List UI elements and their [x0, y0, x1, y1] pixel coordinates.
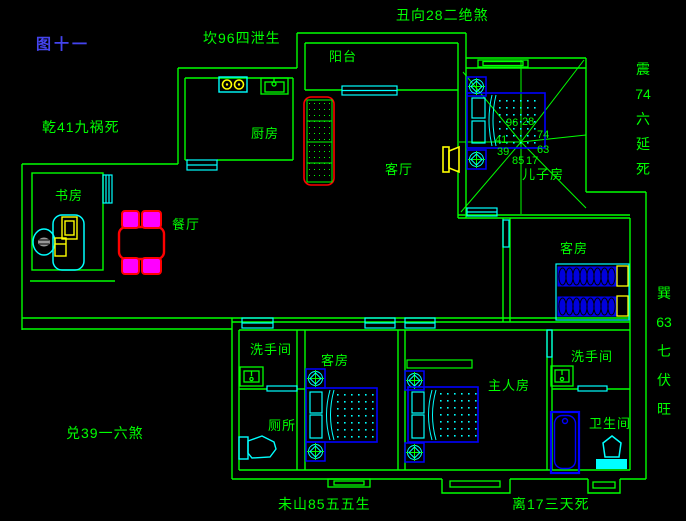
washroom-left-sink	[240, 367, 263, 386]
figure-title: 图十一	[36, 37, 90, 52]
room-label-washroom-right: 洗手间	[571, 349, 613, 364]
balcony-window	[342, 86, 397, 95]
room-label-guest-bottom: 客房	[321, 353, 349, 368]
toilet-tank	[596, 459, 627, 469]
room-label-living: 客厅	[385, 162, 413, 177]
guest-right-beds	[556, 264, 629, 320]
room-label-balcony: 阳台	[329, 49, 357, 64]
corridor-window-1	[242, 318, 273, 328]
room-label-master: 主人房	[488, 378, 530, 393]
guest-bottom-bed	[306, 388, 377, 442]
corridor-window-3	[405, 318, 435, 328]
room-label-guest-right: 客房	[560, 241, 588, 256]
living-room-door	[443, 147, 459, 172]
floorplan-canvas[interactable]: 图十一 坎96四泄生 丑向28二绝煞 乾41九祸死 兑39一六煞 未山85五五生…	[0, 0, 686, 521]
kitchen-stove	[219, 77, 247, 92]
fixture	[306, 369, 325, 388]
compass-number-se: 63	[537, 144, 549, 156]
sofa	[304, 97, 334, 185]
compass-number-e: 74	[537, 129, 549, 141]
pillow	[617, 266, 628, 286]
dining-chairs	[122, 211, 161, 274]
study-desk	[33, 215, 84, 270]
pillow	[617, 296, 628, 316]
annotation-wei: 未山85五五生	[278, 497, 371, 512]
bathroom-door	[578, 386, 607, 391]
fixture	[306, 442, 325, 461]
compass-number-n-right: 28	[522, 116, 534, 128]
bathroom-toilet	[596, 436, 627, 469]
guest-right-window	[503, 220, 509, 247]
annotation-xun: 巽 63 七 伏 旺	[652, 279, 676, 424]
annotation-dui: 兑39一六煞	[66, 426, 144, 441]
study-window	[103, 175, 112, 203]
kitchen-window	[187, 160, 217, 170]
corridor-window-2	[365, 318, 395, 328]
compass-number-sw: 39	[497, 146, 509, 158]
dining-table	[119, 227, 164, 259]
master-bed	[408, 387, 478, 442]
annotation-li: 离17三天死	[512, 497, 590, 512]
annotation-kan: 坎96四泄生	[203, 31, 281, 46]
ceiling-fixtures	[306, 77, 486, 462]
toilet-fixture	[239, 436, 276, 459]
bay-window-bottom-left	[328, 479, 370, 487]
compass-number-s-left: 85	[512, 155, 524, 167]
computer	[55, 217, 77, 256]
room-label-dining: 餐厅	[172, 217, 200, 232]
annotation-chou: 丑向28二绝煞	[396, 8, 489, 23]
bathtub	[551, 412, 579, 473]
compass-number-w: 41	[495, 134, 507, 146]
washroom-right-sink	[551, 366, 573, 386]
floorplan-drawing	[0, 0, 686, 521]
room-label-toilet: 厕所	[268, 418, 296, 433]
room-label-sons-room: 儿子房	[522, 167, 564, 182]
bay-window-bathroom	[593, 482, 615, 488]
room-label-study: 书房	[55, 188, 83, 203]
dining-set	[119, 211, 164, 274]
compass-number-n-left: 96	[506, 117, 518, 129]
room-label-bathroom: 卫生间	[589, 416, 631, 431]
compass-number-s-right: 17	[526, 155, 538, 167]
fixture	[467, 150, 486, 169]
kitchen-sink	[261, 78, 288, 94]
bay-window-master	[450, 481, 500, 487]
toilet-door	[267, 386, 297, 391]
master-window	[547, 330, 552, 357]
annotation-qian: 乾41九祸死	[42, 120, 120, 135]
master-wardrobe	[407, 360, 472, 368]
room-label-washroom-left: 洗手间	[250, 342, 292, 357]
annotation-zhen: 震 74 六 延 死	[631, 57, 655, 182]
room-label-kitchen: 厨房	[251, 126, 279, 141]
fixture	[405, 443, 424, 462]
